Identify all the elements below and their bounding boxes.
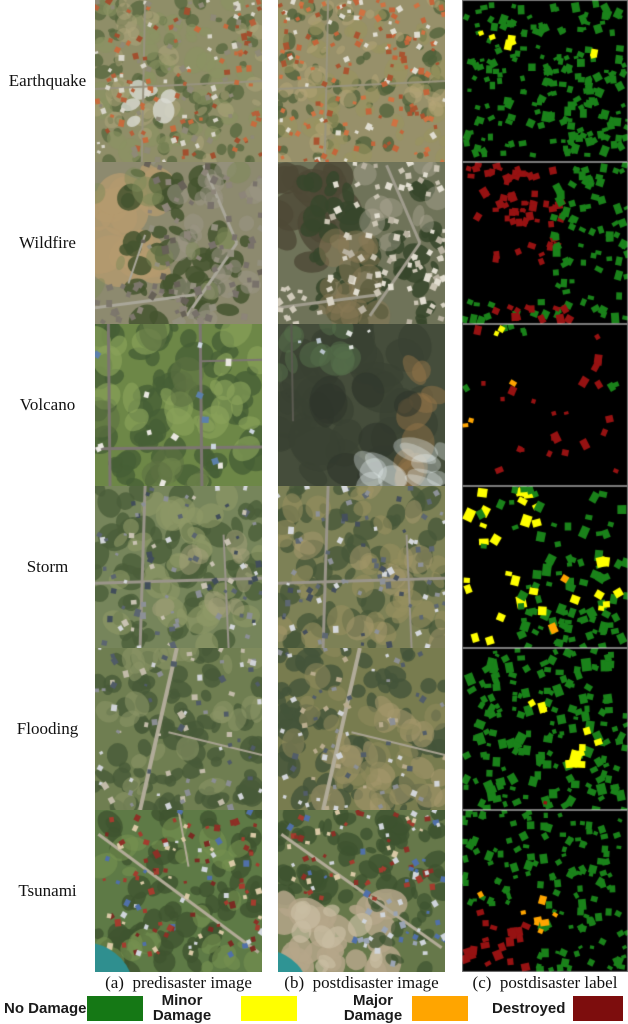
legend-item-no-damage: No Damage bbox=[4, 992, 143, 1024]
legend-swatch-destroyed bbox=[573, 996, 623, 1021]
legend-label-minor-damage: Minor Damage bbox=[143, 993, 221, 1023]
wildfire-postdisaster-image bbox=[278, 162, 445, 324]
legend-swatch-no-damage bbox=[87, 996, 143, 1021]
caption-label: (c) postdisaster label bbox=[462, 972, 628, 994]
legend-item-minor-damage: Minor Damage bbox=[143, 992, 297, 1024]
legend-item-destroyed: Destroyed bbox=[492, 992, 623, 1024]
row-label-flooding: Flooding bbox=[0, 648, 95, 810]
figure-row-storm: Storm bbox=[0, 486, 628, 648]
caption-postdisaster: (b) postdisaster image bbox=[278, 972, 445, 994]
legend-swatch-minor-damage bbox=[241, 996, 297, 1021]
storm-postdisaster-label bbox=[462, 486, 628, 648]
wildfire-postdisaster-label bbox=[462, 162, 628, 324]
tsunami-postdisaster-label bbox=[462, 810, 628, 972]
tsunami-postdisaster-image bbox=[278, 810, 445, 972]
legend-swatch-major-damage bbox=[412, 996, 468, 1021]
storm-postdisaster-image bbox=[278, 486, 445, 648]
tsunami-predisaster-image bbox=[95, 810, 262, 972]
volcano-postdisaster-image bbox=[278, 324, 445, 486]
figure-row-earthquake: Earthquake bbox=[0, 0, 628, 162]
earthquake-predisaster-image bbox=[95, 0, 262, 162]
flooding-predisaster-image bbox=[95, 648, 262, 810]
volcano-postdisaster-label bbox=[462, 324, 628, 486]
figure-row-tsunami: Tsunami bbox=[0, 810, 628, 972]
flooding-postdisaster-label bbox=[462, 648, 628, 810]
row-label-earthquake: Earthquake bbox=[0, 0, 95, 162]
volcano-predisaster-image bbox=[95, 324, 262, 486]
storm-predisaster-image bbox=[95, 486, 262, 648]
disaster-figure: Earthquake Wildfire Volcano Storm Floodi… bbox=[0, 0, 628, 1024]
damage-legend: No Damage Minor Damage Major Damage Dest… bbox=[0, 992, 628, 1024]
flooding-postdisaster-image bbox=[278, 648, 445, 810]
legend-label-destroyed: Destroyed bbox=[492, 1001, 565, 1016]
figure-row-wildfire: Wildfire bbox=[0, 162, 628, 324]
row-label-volcano: Volcano bbox=[0, 324, 95, 486]
figure-row-volcano: Volcano bbox=[0, 324, 628, 486]
legend-label-no-damage: No Damage bbox=[4, 1001, 87, 1016]
earthquake-postdisaster-label bbox=[462, 0, 628, 162]
legend-item-major-damage: Major Damage bbox=[334, 992, 468, 1024]
wildfire-predisaster-image bbox=[95, 162, 262, 324]
row-label-tsunami: Tsunami bbox=[0, 810, 95, 972]
row-label-storm: Storm bbox=[0, 486, 95, 648]
figure-row-flooding: Flooding bbox=[0, 648, 628, 810]
earthquake-postdisaster-image bbox=[278, 0, 445, 162]
column-captions: (a) predisaster image (b) postdisaster i… bbox=[0, 972, 628, 994]
row-label-wildfire: Wildfire bbox=[0, 162, 95, 324]
legend-label-major-damage: Major Damage bbox=[334, 993, 412, 1023]
caption-predisaster: (a) predisaster image bbox=[95, 972, 262, 994]
